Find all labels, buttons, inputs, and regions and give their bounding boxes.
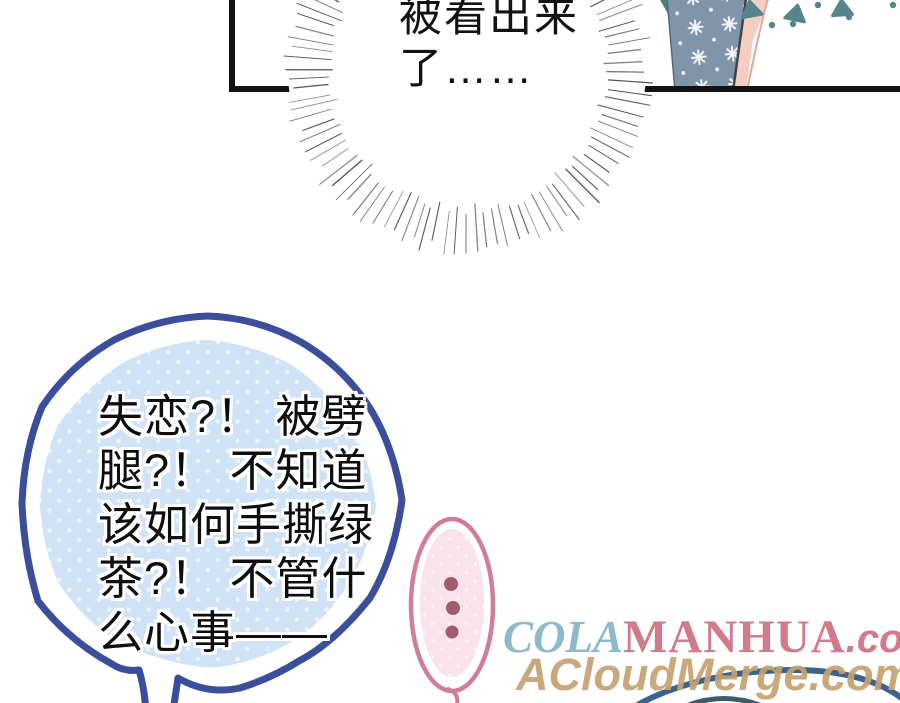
bubble-text-line-3: 该如何手撕绿 bbox=[98, 498, 388, 552]
pink-thought-bubble bbox=[411, 519, 493, 703]
bubble-text-line-5: 么心事—— bbox=[98, 606, 388, 660]
panel-dialogue-line-2: 了…… bbox=[399, 43, 619, 95]
bubble-text-line-1: 失恋?！ 被劈 bbox=[98, 390, 388, 444]
watermark-acloudmerge: ACloudMerge.com bbox=[516, 649, 900, 701]
ellipsis-dots bbox=[444, 577, 460, 639]
blue-bubble-text: 失恋?！ 被劈 腿?！ 不知道 该如何手撕绿 茶?！ 不管什 么心事—— bbox=[98, 390, 388, 660]
comic-page: 被看出来 了…… 失恋?！ 被劈 腿?！ 不知道 该如何手撕绿 茶?！ 不管什 … bbox=[0, 0, 900, 703]
bubble-text-line-4: 茶?！ 不管什 bbox=[98, 552, 388, 606]
bubble-text-line-2: 腿?！ 不知道 bbox=[98, 444, 388, 498]
panel-dialogue-line-1: 被看出来 bbox=[399, 0, 619, 43]
panel-dialogue-text: 被看出来 了…… bbox=[399, 0, 619, 95]
